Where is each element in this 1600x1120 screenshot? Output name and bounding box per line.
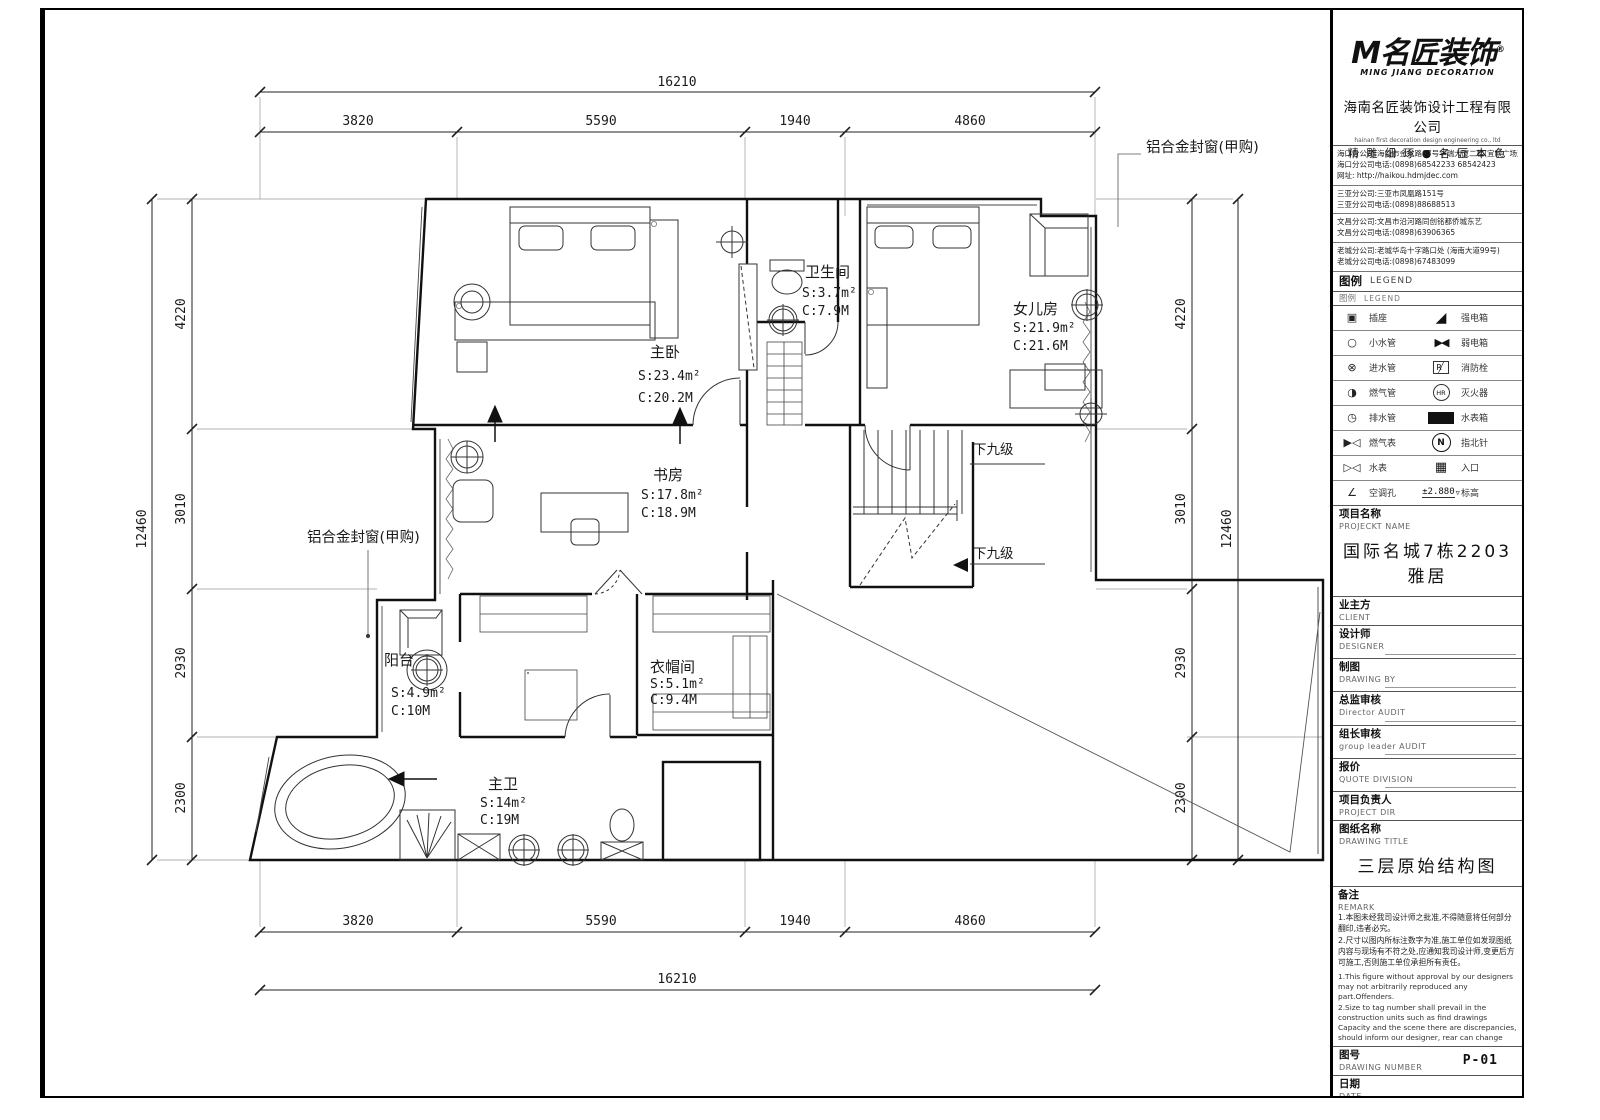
water-meter-box-icon <box>1421 412 1461 424</box>
room-master-bed-perimeter: C:20.2M <box>638 391 693 406</box>
entrance-icon: ▦ <box>1421 460 1461 475</box>
field-director-audit: 总监审核Director AUDIT <box>1333 692 1522 725</box>
registered-mark: ® <box>1496 45 1504 55</box>
field-drawing-by: 制图DRAWING BY <box>1333 659 1522 692</box>
inlet-pipe-icon: ⊗ <box>1335 361 1369 374</box>
room-master-bath-area: S:14m² <box>480 796 527 811</box>
curtain-lines <box>446 302 1090 579</box>
room-bath-small-name: 卫生间 <box>805 263 850 281</box>
legend-row-ac-hole: ∠ 空调孔 ±2.880▽ 标高 <box>1333 481 1522 506</box>
dim-left-total: 12460 <box>135 509 150 548</box>
socket-icon: ▣ <box>1335 311 1369 324</box>
logo-subtitle: MING JIANG DECORATION <box>1360 68 1494 77</box>
project-name-value: 国际名城7栋2203雅居 <box>1339 532 1516 594</box>
legend-row-water-meter: ▷◁ 水表 ▦ 入口 <box>1333 456 1522 481</box>
field-leader-audit: 组长审核group leader AUDIT <box>1333 726 1522 759</box>
small-water-pipe-icon: ○ <box>1335 336 1369 349</box>
drawing-title-value: 三层原始结构图 <box>1339 847 1516 884</box>
legend-row-inlet-pipe: ⊗ 进水管 R 消防栓 <box>1333 356 1522 381</box>
ac-hole-icon: ∠ <box>1335 486 1369 499</box>
strong-power-box-icon: ◢ <box>1421 310 1461 326</box>
legend-subheader: 图例 LEGEND <box>1333 292 1522 306</box>
dim-left-seg-2: 2930 <box>174 647 189 678</box>
room-master-bath-name: 主卫 <box>488 775 518 793</box>
dim-right-seg-3: 2300 <box>1174 782 1189 813</box>
dim-left-seg-3: 2300 <box>174 782 189 813</box>
room-balcony-perimeter: C:10M <box>391 704 430 719</box>
legend-row-socket: ▣ 插座 ◢ 强电箱 <box>1333 306 1522 331</box>
field-project-dir: 项目负责人PROJECT DIR <box>1333 792 1522 821</box>
remark-en: 1.This figure without approval by our de… <box>1338 972 1517 1043</box>
company-name-en: hainan first decoration design engineeri… <box>1348 136 1507 143</box>
room-master-bath-perimeter: C:19M <box>480 813 519 828</box>
gas-meter-icon: ▶◁ <box>1335 436 1369 449</box>
elevation-mark-icon: ±2.880▽ <box>1421 487 1461 498</box>
dim-right-total: 12460 <box>1220 509 1235 548</box>
dim-bot-seg-2: 1940 <box>779 914 810 929</box>
water-meter-icon: ▷◁ <box>1335 461 1369 474</box>
logo-mark: M <box>1351 36 1380 71</box>
dimension-text: 16210 3820 5590 1940 4860 3820 5590 1940… <box>135 75 1235 987</box>
dim-bot-seg-1: 5590 <box>585 914 616 929</box>
dim-bot-seg-3: 4860 <box>954 914 985 929</box>
company-logo: M名匠装饰® MING JIANG DECORATION <box>1333 10 1522 94</box>
title-block: M名匠装饰® MING JIANG DECORATION 海南名匠装饰设计工程有… <box>1330 10 1522 1096</box>
room-daughter-area: S:21.9m² <box>1013 321 1076 336</box>
field-drawing-number: 图号DRAWING NUMBER P-01 <box>1333 1047 1522 1076</box>
room-cloakroom-name: 衣帽间 <box>650 658 695 676</box>
drain-pipe-icon: ◷ <box>1335 411 1369 424</box>
room-balcony-area: S:4.9m² <box>391 686 446 701</box>
dim-bot-seg-0: 3820 <box>342 914 373 929</box>
branch-sanya: 三亚分公司:三亚市凤凰路151号 三亚分公司电话:(0898)88688513 <box>1333 186 1522 215</box>
legend-header: 图例 LEGEND <box>1333 272 1522 292</box>
window-label-top-right: 铝合金封窗(甲购) <box>1146 138 1259 156</box>
field-client: 业主方CLIENT <box>1333 597 1522 626</box>
room-daughter-perimeter: C:21.6M <box>1013 339 1068 354</box>
dim-top-seg-0: 3820 <box>342 114 373 129</box>
field-drawing-title: 图纸名称DRAWING TITLE 三层原始结构图 <box>1333 821 1522 887</box>
stairs-label-lower: 下九级 <box>973 546 1014 562</box>
fire-hydrant-icon: R <box>1421 361 1461 374</box>
room-balcony-name: 阳台 <box>384 651 414 669</box>
room-study-name: 书房 <box>653 466 683 484</box>
logo-text: M名匠装饰® <box>1351 28 1504 72</box>
screenshot: 16210 3820 5590 1940 4860 3820 5590 1940… <box>0 0 1600 1120</box>
field-project-name: 项目名称PROJECKT NAME 国际名城7栋2203雅居 <box>1333 506 1522 597</box>
legend-table: ▣ 插座 ◢ 强电箱 ○ 小水管 ▶◀ 弱电箱 ⊗ 进水管 R 消防栓 <box>1333 306 1522 506</box>
legend-row-gas-pipe: ◑ 燃气管 HR 灭火器 <box>1333 381 1522 406</box>
legend-row-small-pipe: ○ 小水管 ▶◀ 弱电箱 <box>1333 331 1522 356</box>
room-study-area: S:17.8m² <box>641 488 704 503</box>
field-quote: 报价QUOTE DIVISION <box>1333 759 1522 792</box>
company-block: 海南名匠装饰设计工程有限公司 hainan first decoration d… <box>1333 94 1522 146</box>
drawing-number-value: P-01 <box>1463 1053 1516 1068</box>
field-date: 日期DATE <box>1333 1076 1522 1096</box>
branch-wenchang: 文昌分公司:文昌市沿河路同创铭都侨城东艺 文昌分公司电话:(0898)63906… <box>1333 214 1522 243</box>
leader-labels: 铝合金封窗(甲购) 铝合金封窗(甲购) <box>307 138 1259 638</box>
drawing-sheet: 16210 3820 5590 1940 4860 3820 5590 1940… <box>40 8 1524 1098</box>
floor-plan: 16210 3820 5590 1940 4860 3820 5590 1940… <box>45 10 1335 1096</box>
branch-laocheng: 老城分公司:老城华岛十字路口处 (海南大道99号) 老城分公司电话:(0898)… <box>1333 243 1522 272</box>
dim-top-seg-1: 5590 <box>585 114 616 129</box>
remark-section: 备注REMARK 1.本图未经我司设计师之批准,不得随意将任何部分翻印,违者必究… <box>1333 887 1522 1047</box>
floor-plan-svg: 16210 3820 5590 1940 4860 3820 5590 1940… <box>45 10 1337 1098</box>
dim-right-seg-1: 3010 <box>1174 493 1189 524</box>
legend-row-gas-meter: ▶◁ 燃气表 N 指北针 <box>1333 431 1522 456</box>
room-daughter-name: 女儿房 <box>1013 300 1058 318</box>
field-designer: 设计师DESIGNER <box>1333 626 1522 659</box>
legend-row-drain-pipe: ◷ 排水管 水表箱 <box>1333 406 1522 431</box>
dim-top-seg-3: 4860 <box>954 114 985 129</box>
room-cloakroom-perimeter: C:9.4M <box>650 693 697 708</box>
dim-left-seg-1: 3010 <box>174 493 189 524</box>
dim-right-seg-2: 2930 <box>1174 647 1189 678</box>
room-cloakroom-area: S:5.1m² <box>650 677 705 692</box>
dim-left-seg-0: 4220 <box>174 298 189 329</box>
dim-right-seg-0: 4220 <box>1174 298 1189 329</box>
gas-pipe-icon: ◑ <box>1335 386 1369 399</box>
dim-top-total: 16210 <box>657 75 696 90</box>
furniture <box>266 207 1320 865</box>
branch-haikou: 海口分公司:海口市金龙路67号华瑞大厦二楼(宜欣广场对面) 海口分公司电话:(0… <box>1333 146 1522 186</box>
room-master-bed-name: 主卧 <box>650 343 680 361</box>
dim-bot-total: 16210 <box>657 972 696 987</box>
room-master-bed-area: S:23.4m² <box>638 369 701 384</box>
witness-lines <box>157 97 1323 927</box>
weak-power-box-icon: ▶◀ <box>1421 336 1461 349</box>
north-compass-icon: N <box>1421 433 1461 452</box>
stairs-label-upper: 下九级 <box>973 442 1014 458</box>
fire-extinguisher-icon: HR <box>1421 384 1461 401</box>
window-label-left: 铝合金封窗(甲购) <box>307 528 420 546</box>
company-name: 海南名匠装饰设计工程有限公司 <box>1339 96 1516 136</box>
remark-cn: 1.本图未经我司设计师之批准,不得随意将任何部分翻印,违者必究。 2.尺寸以图内… <box>1338 913 1517 969</box>
room-bath-small-area: S:3.7m² <box>802 286 857 301</box>
dim-top-seg-2: 1940 <box>779 114 810 129</box>
room-study-perimeter: C:18.9M <box>641 506 696 521</box>
stairs <box>853 430 1045 585</box>
room-bath-small-perimeter: C:7.9M <box>802 304 849 319</box>
